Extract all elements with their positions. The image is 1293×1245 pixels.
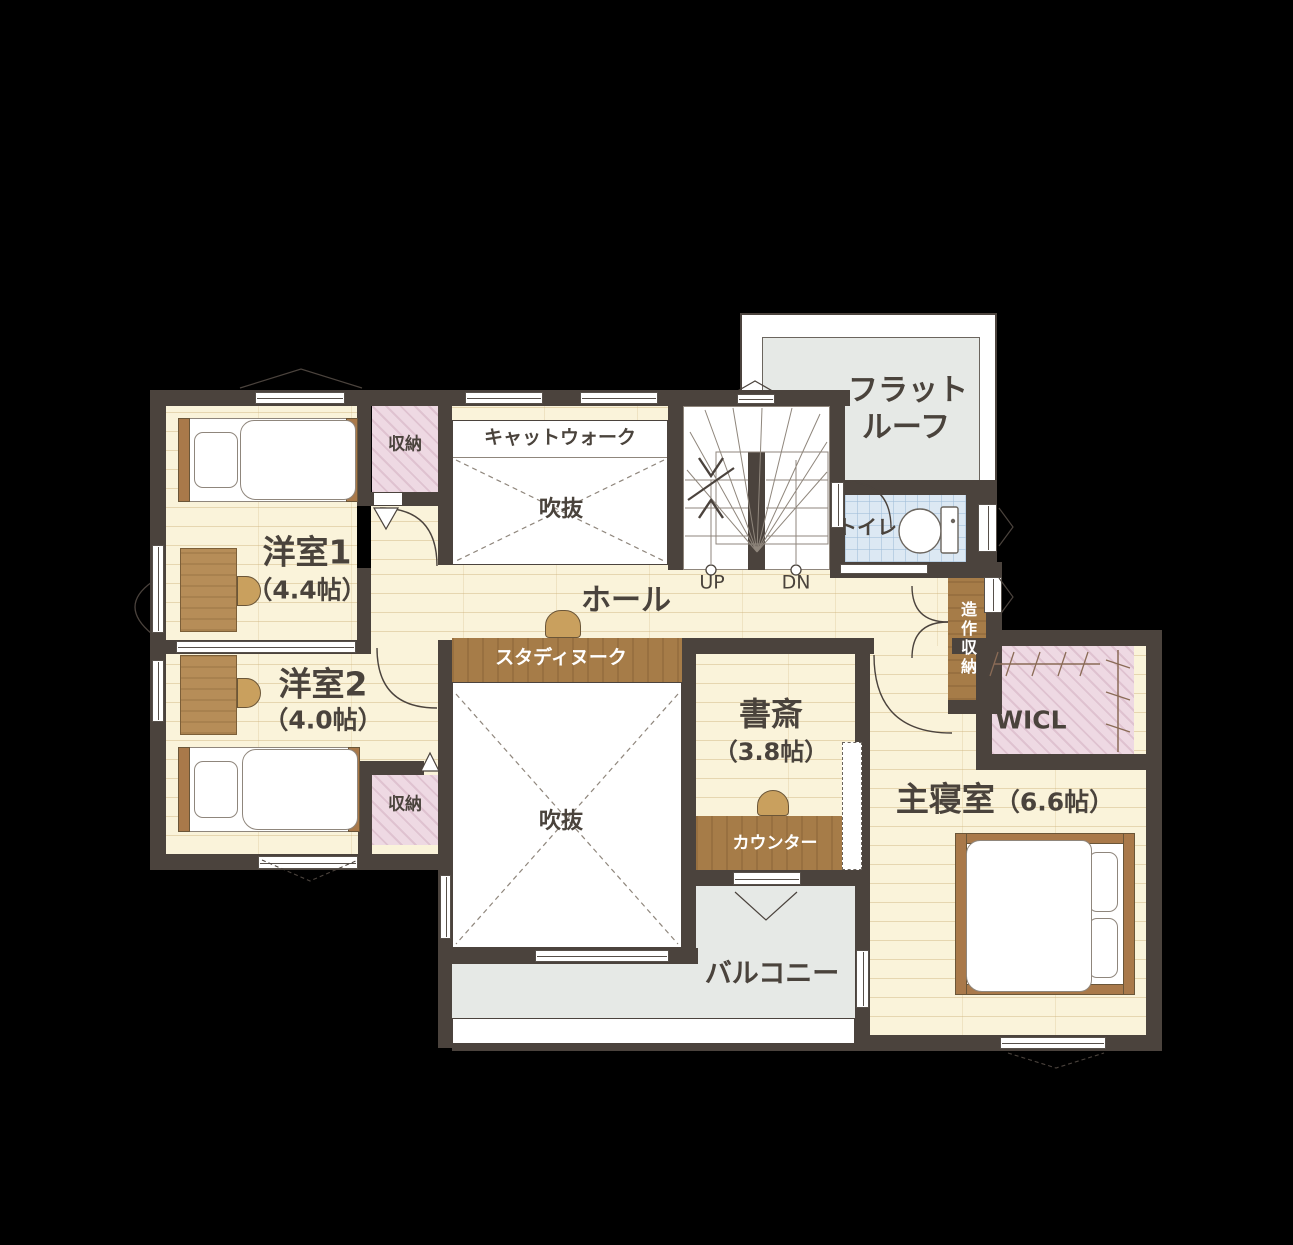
room1-size-label: （4.4帖）	[247, 578, 366, 603]
stairs-up-label: UP	[699, 574, 724, 593]
pillow	[1088, 918, 1118, 978]
balcony-label: バルコニー	[705, 961, 839, 988]
wall-segment	[357, 390, 371, 506]
room2-label: 洋室2	[279, 668, 368, 701]
counter-label: カウンター	[733, 836, 818, 853]
bed-frame	[178, 747, 190, 832]
balcony-floor-right	[682, 886, 855, 1018]
hall-label: ホール	[581, 586, 671, 616]
balcony-floor-left	[452, 964, 682, 1018]
window	[580, 392, 658, 404]
wall-segment	[438, 640, 452, 1048]
pillow	[194, 432, 238, 488]
balcony-edge	[452, 1044, 855, 1051]
window	[152, 660, 164, 722]
window	[737, 394, 775, 404]
gable-chevron	[240, 369, 362, 388]
window	[258, 856, 358, 869]
storage-upper-label: 収納	[388, 437, 422, 454]
study-size-label: （3.8帖）	[714, 740, 829, 764]
void-lower-label: 吹抜	[539, 811, 583, 833]
wicl-label: WICL	[995, 708, 1066, 733]
study-stool	[757, 790, 789, 816]
window	[1000, 1037, 1106, 1049]
void-upper-label: 吹抜	[539, 499, 583, 521]
study-nook-label: スタディヌーク	[495, 649, 627, 668]
window	[856, 950, 869, 1008]
bed-frame	[178, 418, 190, 502]
window	[984, 577, 1002, 613]
wicl-area	[992, 646, 1134, 754]
storage-lower-label: 収納	[388, 797, 422, 814]
master-bedroom-size: （6.6帖）	[995, 788, 1114, 817]
wall-segment	[976, 754, 1162, 770]
room1-label: 洋室1	[263, 536, 352, 569]
master-bedroom-label: 主寝室（6.6帖）	[896, 783, 1114, 816]
wall-segment	[1146, 646, 1162, 1051]
room2-size-label: （4.0帖）	[263, 708, 382, 733]
desk-room1	[180, 548, 237, 632]
builtin-storage-label: 造作収納	[948, 582, 986, 696]
toilet-label: トイレ	[837, 517, 897, 537]
balcony-door	[733, 872, 801, 885]
window	[255, 392, 345, 404]
window	[535, 950, 669, 962]
wall-segment	[358, 761, 372, 854]
duvet	[966, 840, 1092, 992]
balcony-railing	[452, 1018, 855, 1044]
catwalk-label: キャットウォーク	[484, 429, 636, 448]
window-chevron-dashed	[1008, 1053, 1104, 1068]
window	[440, 875, 451, 939]
wall-segment	[668, 406, 683, 570]
wall-segment	[438, 390, 452, 565]
window	[152, 545, 164, 633]
master-bedroom-name: 主寝室	[896, 780, 995, 819]
bed-frame	[1123, 833, 1135, 995]
sliding-door	[176, 641, 356, 653]
duvet	[242, 749, 358, 830]
storage-door-gap	[374, 493, 402, 505]
stairs-dn-label: DN	[782, 574, 811, 593]
study-shelf	[842, 742, 862, 870]
window-chevron	[999, 508, 1013, 546]
flat-roof-label-1: フラット	[848, 376, 968, 406]
window	[978, 504, 997, 552]
wall-segment	[948, 700, 1002, 714]
pillow	[194, 761, 238, 818]
wall-segment	[682, 654, 696, 964]
stair-spine-wall	[748, 452, 765, 570]
desk-room2	[180, 655, 237, 735]
study-label: 書斎	[739, 698, 803, 730]
flat-roof-label-2: ルーフ	[862, 413, 950, 443]
window	[465, 392, 543, 404]
duvet	[240, 420, 356, 500]
floor-plan: フラット ルーフ キャットウォーク 吹抜 吹抜 収納 収納 洋室1 （4.4帖）…	[0, 0, 1293, 1245]
wall-segment	[682, 638, 874, 654]
study-nook-stool	[545, 610, 581, 638]
wall-segment	[986, 630, 1162, 646]
toilet-shelf	[840, 564, 928, 574]
pillow	[1088, 852, 1118, 912]
